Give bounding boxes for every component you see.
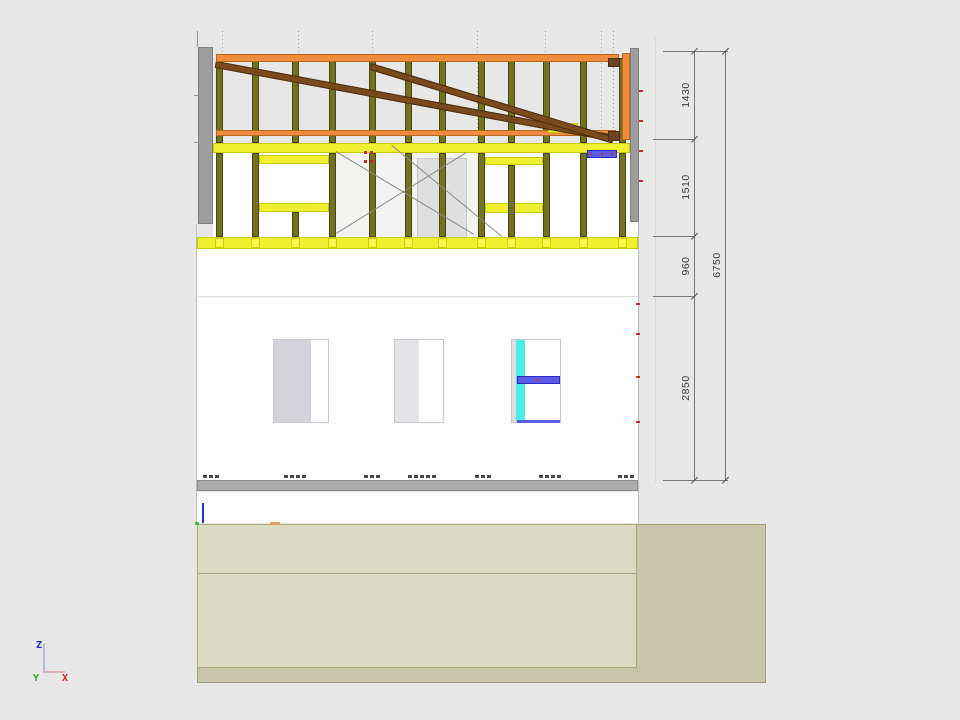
window-header-yellow — [485, 157, 543, 165]
stud-cap-yellow — [215, 238, 224, 248]
dim-ext-line — [653, 236, 695, 237]
dim-label-1430: 1430 — [680, 70, 692, 120]
top-band-yellow — [213, 143, 630, 153]
level-dash-orange — [270, 522, 280, 525]
window-mid-stud — [508, 165, 515, 237]
dim-ext-line — [653, 296, 695, 297]
terrain-section-light — [197, 524, 637, 668]
right-wall-section — [630, 48, 639, 222]
cripple-stud — [292, 212, 299, 237]
clipped-dim-digits — [376, 475, 380, 478]
window-leaf-gray — [274, 340, 311, 422]
clipped-dim-digits — [364, 475, 368, 478]
clipped-dim-digits — [370, 475, 374, 478]
clipped-dim-digits — [426, 475, 430, 478]
lintel-red-dot — [590, 153, 592, 155]
clipped-dim-digits — [215, 475, 219, 478]
dim-ext-line — [663, 51, 728, 52]
edge-red-marker — [636, 421, 640, 423]
clipped-dim-digits — [296, 475, 300, 478]
sheet-below-slab — [197, 492, 638, 523]
dim-label-1510: 1510 — [680, 162, 692, 212]
edge-red-marker — [636, 333, 640, 335]
stud-red-marker — [364, 160, 367, 163]
wall-stud — [369, 153, 376, 237]
corner-tick — [197, 31, 198, 47]
window-header-yellow — [259, 155, 329, 164]
wall-stud — [252, 153, 259, 237]
lintel-red-dot — [601, 153, 603, 155]
stud-cap-yellow — [368, 238, 377, 248]
level-dot-green — [195, 522, 199, 525]
stud-red-marker — [364, 151, 367, 154]
axis-z-label: Z — [36, 640, 42, 651]
wall-stud — [329, 153, 336, 237]
clipped-dim-digits — [203, 475, 207, 478]
stud-cap-yellow — [618, 238, 627, 248]
top-plate-orange — [216, 54, 619, 62]
clipped-dim-digits — [551, 475, 555, 478]
edge-red-marker — [639, 150, 643, 152]
stud-cap-yellow — [328, 238, 337, 248]
clipped-dim-digits — [209, 475, 213, 478]
transom-red-dot — [537, 379, 539, 381]
clipped-dim-digits — [408, 475, 412, 478]
left-wall-section — [198, 47, 213, 224]
terrain-layer-line — [197, 573, 637, 574]
stud-red-marker — [370, 151, 373, 154]
clipped-dim-digits — [545, 475, 549, 478]
clipped-dim-digits — [618, 475, 622, 478]
clipped-dim-digits — [487, 475, 491, 478]
stud-cap-yellow — [291, 238, 300, 248]
stud-red-marker — [370, 160, 373, 163]
axis-z-line — [43, 644, 45, 673]
stud-cap-yellow — [438, 238, 447, 248]
clipped-dim-digits — [539, 475, 543, 478]
clipped-dim-digits — [475, 475, 479, 478]
stud-cap-yellow — [477, 238, 486, 248]
clipped-dim-digits — [630, 475, 634, 478]
grid-line-dotted — [601, 31, 602, 143]
dim-label-2850: 2850 — [680, 363, 692, 413]
axis-y-label: Y — [33, 673, 39, 684]
floor-band-yellow — [197, 237, 638, 249]
floor-slab-band — [197, 480, 638, 491]
window-leaf-gray — [395, 340, 419, 422]
dim-ext-line — [663, 480, 728, 481]
dim-overall-line — [725, 51, 726, 480]
wall-stud — [580, 153, 587, 237]
clipped-dim-digits — [432, 475, 436, 478]
left-tick — [194, 95, 199, 96]
clipped-dim-digits — [420, 475, 424, 478]
clipped-dim-digits — [414, 475, 418, 478]
viewport-line — [655, 37, 656, 482]
clipped-dim-digits — [302, 475, 306, 478]
edge-red-marker — [636, 376, 640, 378]
dim-label-960: 960 — [680, 241, 692, 291]
clipped-dim-digits — [624, 475, 628, 478]
clipped-dim-digits — [290, 475, 294, 478]
brace-anchor-brown — [608, 58, 620, 67]
dim-label-overall-6750: 6750 — [711, 240, 723, 290]
stud-cap-yellow — [507, 238, 516, 248]
stud-cap-yellow — [404, 238, 413, 248]
stud-cap-yellow — [579, 238, 588, 248]
axis-x-label: X — [62, 673, 68, 684]
stud-cap-yellow — [542, 238, 551, 248]
wall-stud — [543, 153, 550, 237]
lintel-red-dot — [611, 153, 613, 155]
clipped-dim-digits — [557, 475, 561, 478]
left-tick — [194, 142, 199, 143]
brace-anchor-brown — [608, 131, 620, 141]
level-tick-blue — [202, 503, 204, 523]
dim-tick — [722, 477, 729, 484]
grid-line-dotted — [613, 31, 614, 143]
cad-drawing-canvas[interactable]: 1430 1510 960 2850 6750 Z Y X — [0, 0, 960, 720]
edge-red-marker — [639, 180, 643, 182]
stud-cap-yellow — [251, 238, 260, 248]
edge-red-marker — [639, 120, 643, 122]
clipped-dim-digits — [284, 475, 288, 478]
clipped-dim-digits — [481, 475, 485, 478]
dim-ext-line — [653, 139, 695, 140]
dim-chain-line — [694, 51, 695, 480]
edge-red-marker — [639, 90, 643, 92]
window-sill-yellow — [259, 203, 329, 212]
wall-stud — [619, 153, 626, 237]
wall-stud — [478, 153, 485, 237]
window-sill-blue — [517, 420, 560, 423]
ceiling-line — [197, 296, 638, 297]
end-post-orange — [622, 53, 630, 140]
edge-red-marker — [636, 303, 640, 305]
sheet-left-edge — [196, 224, 197, 524]
wall-stud — [216, 153, 223, 237]
